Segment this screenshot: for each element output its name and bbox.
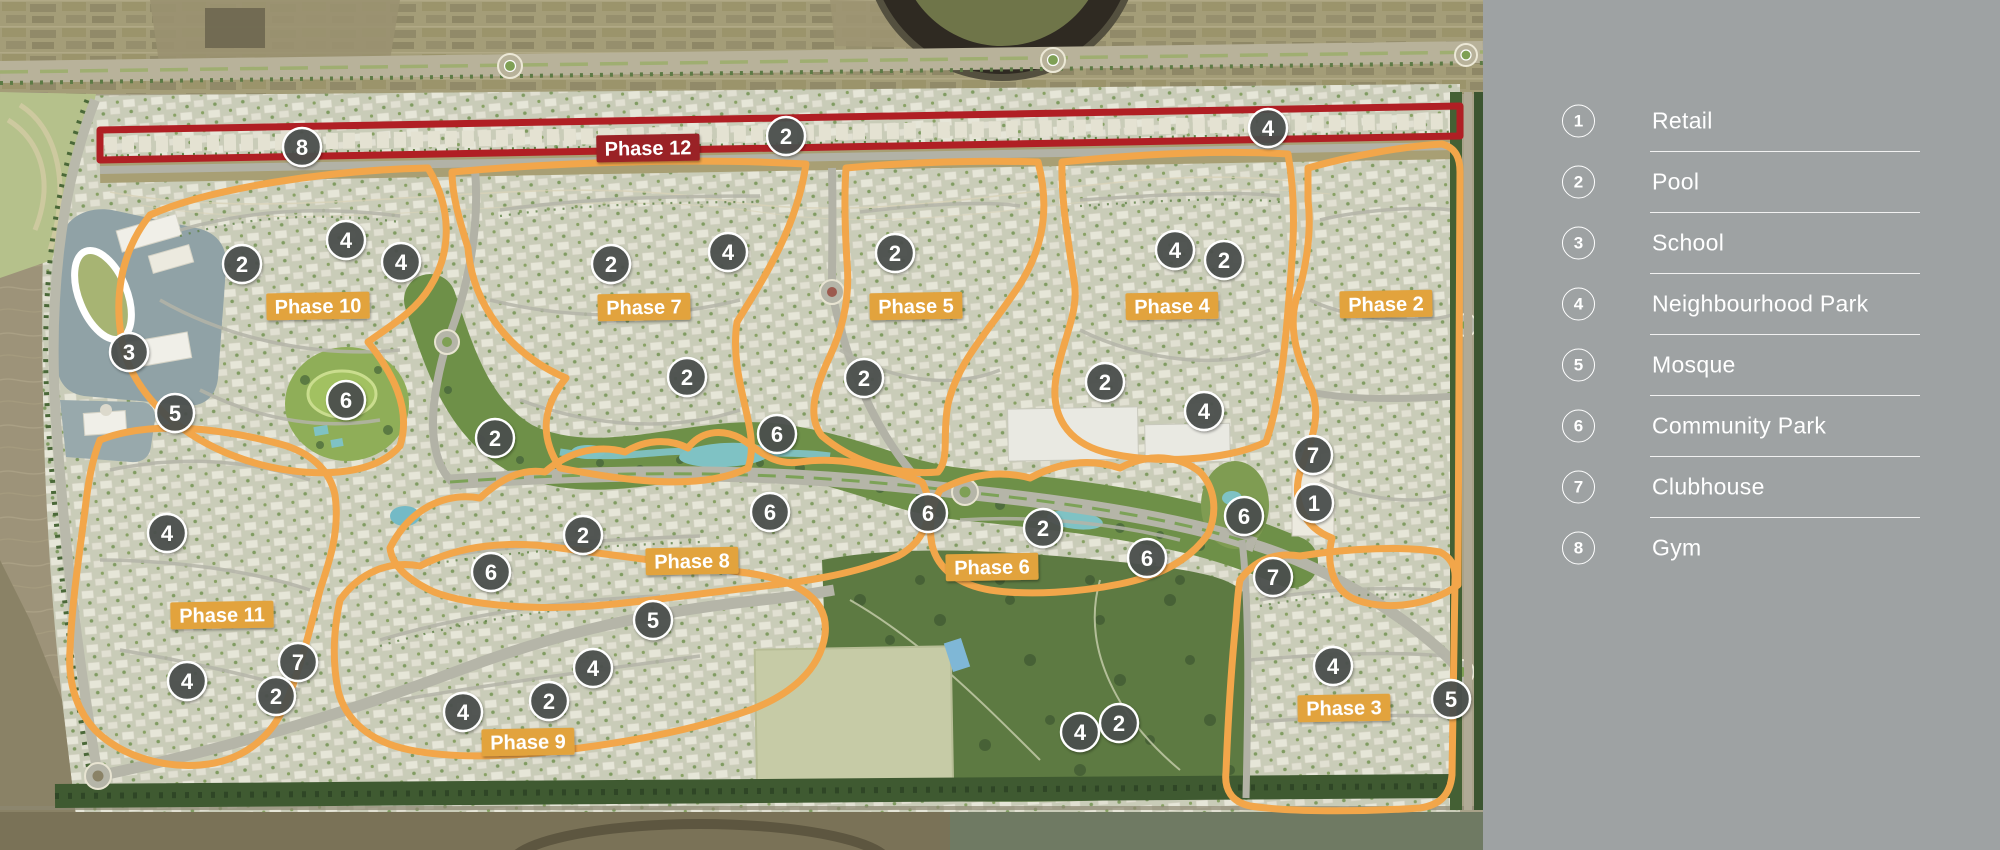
map-marker-2: 2	[668, 358, 706, 396]
map-marker-6: 6	[1225, 497, 1263, 535]
marker-number: 5	[169, 401, 181, 426]
map-marker-4: 4	[444, 693, 482, 731]
marker-number: 6	[1141, 546, 1153, 571]
map-marker-2: 2	[1086, 363, 1124, 401]
map-marker-2: 2	[767, 117, 805, 155]
legend-item-clubhouse: 7Clubhouse	[1483, 457, 2000, 518]
legend-number-circle: 7	[1562, 471, 1595, 504]
marker-number: 7	[1267, 565, 1279, 590]
legend-panel: 1Retail2Pool3School4Neighbourhood Park5M…	[1483, 0, 2000, 850]
marker-number: 4	[395, 250, 408, 275]
legend-number-circle: 6	[1562, 410, 1595, 443]
map-marker-2: 2	[592, 245, 630, 283]
map-marker-2: 2	[476, 419, 514, 457]
phase-label-text: Phase 5	[878, 295, 954, 318]
legend-number-circle: 1	[1562, 105, 1595, 138]
marker-number: 6	[485, 560, 497, 585]
map-marker-4: 4	[1156, 231, 1194, 269]
legend-item-community-park: 6Community Park	[1483, 396, 2000, 457]
phase-label-phase-4: Phase 4	[1125, 292, 1218, 321]
phase-label-phase-12: Phase 12	[596, 134, 700, 163]
map-marker-4: 4	[1185, 392, 1223, 430]
legend-item-school: 3School	[1483, 213, 2000, 274]
map-marker-2: 2	[845, 359, 883, 397]
map-marker-4: 4	[1314, 647, 1352, 685]
marker-number: 2	[236, 252, 248, 277]
marker-number: 3	[123, 340, 135, 365]
map-marker-3: 3	[110, 333, 148, 371]
phase-label-phase-8: Phase 8	[645, 547, 738, 576]
legend-number-circle: 2	[1562, 166, 1595, 199]
masterplan-screenshot: Phase 12Phase 10Phase 7Phase 5Phase 4Pha…	[0, 0, 2000, 850]
legend-number-circle: 8	[1562, 532, 1595, 565]
map-marker-5: 5	[1432, 680, 1470, 718]
marker-number: 4	[340, 228, 353, 253]
marker-number: 2	[1099, 370, 1111, 395]
map-marker-2: 2	[530, 682, 568, 720]
map-marker-2: 2	[257, 677, 295, 715]
map-marker-4: 4	[1249, 109, 1287, 147]
marker-number: 6	[764, 500, 776, 525]
marker-number: 6	[771, 422, 783, 447]
map-marker-4: 4	[168, 662, 206, 700]
map-marker-6: 6	[327, 381, 365, 419]
marker-number: 2	[1113, 711, 1125, 736]
map-marker-4: 4	[327, 221, 365, 259]
legend-number: 7	[1574, 479, 1583, 496]
marker-number: 6	[922, 501, 934, 526]
phase-label-phase-6: Phase 6	[945, 553, 1038, 582]
phase-label-phase-3: Phase 3	[1297, 694, 1390, 723]
legend-label: School	[1652, 230, 1724, 257]
marker-number: 2	[605, 252, 617, 277]
legend-item-retail: 1Retail	[1483, 91, 2000, 152]
legend-number: 3	[1574, 235, 1583, 252]
marker-number: 8	[296, 135, 308, 160]
phase-label-phase-10: Phase 10	[266, 292, 370, 321]
legend-item-neighbourhood-park: 4Neighbourhood Park	[1483, 274, 2000, 335]
map-marker-2: 2	[1024, 509, 1062, 547]
map-marker-7: 7	[1294, 436, 1332, 474]
phase-label-text: Phase 6	[954, 556, 1030, 579]
phase-label-text: Phase 12	[604, 137, 691, 161]
legend-number: 5	[1574, 357, 1583, 374]
phase-label-phase-11: Phase 11	[170, 601, 274, 630]
map-marker-2: 2	[1100, 704, 1138, 742]
phase-label-phase-7: Phase 7	[597, 293, 690, 322]
marker-number: 2	[780, 124, 792, 149]
marker-number: 7	[292, 650, 304, 675]
map-marker-5: 5	[156, 394, 194, 432]
phase-label-text: Phase 2	[1348, 293, 1424, 316]
map-marker-6: 6	[751, 493, 789, 531]
legend-number-circle: 3	[1562, 227, 1595, 260]
marker-number: 2	[1037, 516, 1049, 541]
legend-label: Community Park	[1652, 413, 1826, 440]
legend-item-gym: 8Gym	[1483, 518, 2000, 579]
phase-label-text: Phase 7	[606, 296, 682, 319]
marker-number: 2	[858, 366, 870, 391]
map-marker-4: 4	[574, 649, 612, 687]
phase-label-phase-2: Phase 2	[1339, 290, 1432, 319]
map-marker-4: 4	[1061, 713, 1099, 751]
map-marker-6: 6	[1128, 539, 1166, 577]
marker-number: 5	[1445, 687, 1457, 712]
legend-label: Gym	[1652, 535, 1701, 562]
marker-number: 4	[722, 240, 735, 265]
marker-number: 2	[270, 684, 282, 709]
marker-number: 2	[543, 689, 555, 714]
legend-number: 8	[1574, 540, 1583, 557]
marker-number: 4	[1327, 654, 1340, 679]
marker-number: 4	[161, 521, 174, 546]
marker-number: 4	[587, 656, 600, 681]
marker-number: 4	[457, 700, 470, 725]
legend-number: 1	[1574, 113, 1583, 130]
legend-label: Retail	[1652, 108, 1713, 135]
legend-number: 4	[1574, 296, 1583, 313]
map-marker-7: 7	[1254, 558, 1292, 596]
legend-item-pool: 2Pool	[1483, 152, 2000, 213]
legend-label: Pool	[1652, 169, 1699, 196]
marker-number: 7	[1307, 443, 1319, 468]
map-marker-2: 2	[564, 516, 602, 554]
phase-label-phase-9: Phase 9	[481, 728, 574, 757]
map-marker-6: 6	[472, 553, 510, 591]
marker-number: 4	[1198, 399, 1211, 424]
map-marker-1: 1	[1295, 484, 1333, 522]
legend-number: 2	[1574, 174, 1583, 191]
phase-label-text: Phase 8	[654, 550, 730, 573]
phase-label-text: Phase 3	[1306, 697, 1382, 720]
map-marker-4: 4	[382, 243, 420, 281]
legend-label: Clubhouse	[1652, 474, 1765, 501]
map-marker-2: 2	[1205, 241, 1243, 279]
marker-number: 2	[681, 365, 693, 390]
marker-number: 2	[577, 523, 589, 548]
legend-label: Neighbourhood Park	[1652, 291, 1868, 318]
marker-number: 2	[489, 426, 501, 451]
marker-number: 4	[1169, 238, 1182, 263]
marker-number: 4	[1074, 720, 1087, 745]
legend-number-circle: 5	[1562, 349, 1595, 382]
map-marker-7: 7	[279, 643, 317, 681]
map-marker-2: 2	[876, 234, 914, 272]
legend-number-circle: 4	[1562, 288, 1595, 321]
marker-number: 4	[181, 669, 194, 694]
map-marker-8: 8	[283, 128, 321, 166]
legend-label: Mosque	[1652, 352, 1736, 379]
phase-label-text: Phase 11	[179, 604, 265, 627]
phase-label-phase-5: Phase 5	[869, 292, 962, 321]
legend-item-mosque: 5Mosque	[1483, 335, 2000, 396]
map-marker-6: 6	[758, 415, 796, 453]
phase-label-text: Phase 4	[1134, 295, 1211, 318]
legend-number: 6	[1574, 418, 1583, 435]
map-marker-6: 6	[909, 494, 947, 532]
map-marker-2: 2	[223, 245, 261, 283]
marker-number: 4	[1262, 116, 1275, 141]
marker-number: 2	[889, 241, 901, 266]
marker-number: 6	[340, 388, 352, 413]
map-marker-5: 5	[634, 601, 672, 639]
marker-number: 1	[1308, 491, 1320, 516]
phase-label-text: Phase 10	[274, 295, 361, 319]
marker-number: 5	[647, 608, 659, 633]
marker-number: 6	[1238, 504, 1250, 529]
map-marker-4: 4	[148, 514, 186, 552]
map-marker-4: 4	[709, 233, 747, 271]
phase-label-text: Phase 9	[490, 731, 566, 754]
north-city-strip	[0, 0, 1483, 94]
marker-number: 2	[1218, 248, 1230, 273]
